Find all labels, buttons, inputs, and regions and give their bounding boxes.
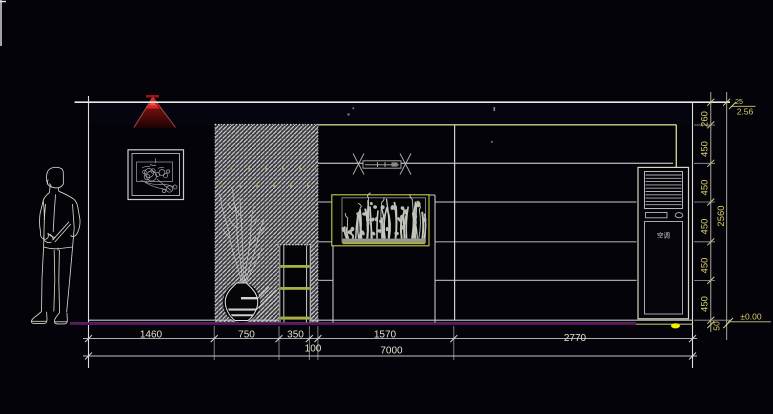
svg-text:750: 750 xyxy=(238,330,255,341)
svg-text:1460: 1460 xyxy=(140,330,163,341)
svg-text:1570: 1570 xyxy=(374,330,397,341)
svg-text:2770: 2770 xyxy=(564,333,587,344)
svg-text:450: 450 xyxy=(700,141,711,157)
svg-text:25: 25 xyxy=(735,99,743,106)
svg-text:450: 450 xyxy=(700,258,711,274)
svg-text:2.56: 2.56 xyxy=(737,107,754,117)
svg-text:空调: 空调 xyxy=(657,231,670,240)
svg-text:2560: 2560 xyxy=(716,205,727,226)
svg-text:350: 350 xyxy=(287,330,304,341)
svg-text:7000: 7000 xyxy=(380,346,403,357)
svg-text:450: 450 xyxy=(700,296,711,312)
svg-text:50: 50 xyxy=(711,321,721,331)
svg-text:100: 100 xyxy=(305,344,322,355)
svg-text:±0.00: ±0.00 xyxy=(740,312,761,322)
svg-text:450: 450 xyxy=(700,219,711,235)
svg-text:260: 260 xyxy=(700,111,711,127)
svg-text:450: 450 xyxy=(700,180,711,196)
